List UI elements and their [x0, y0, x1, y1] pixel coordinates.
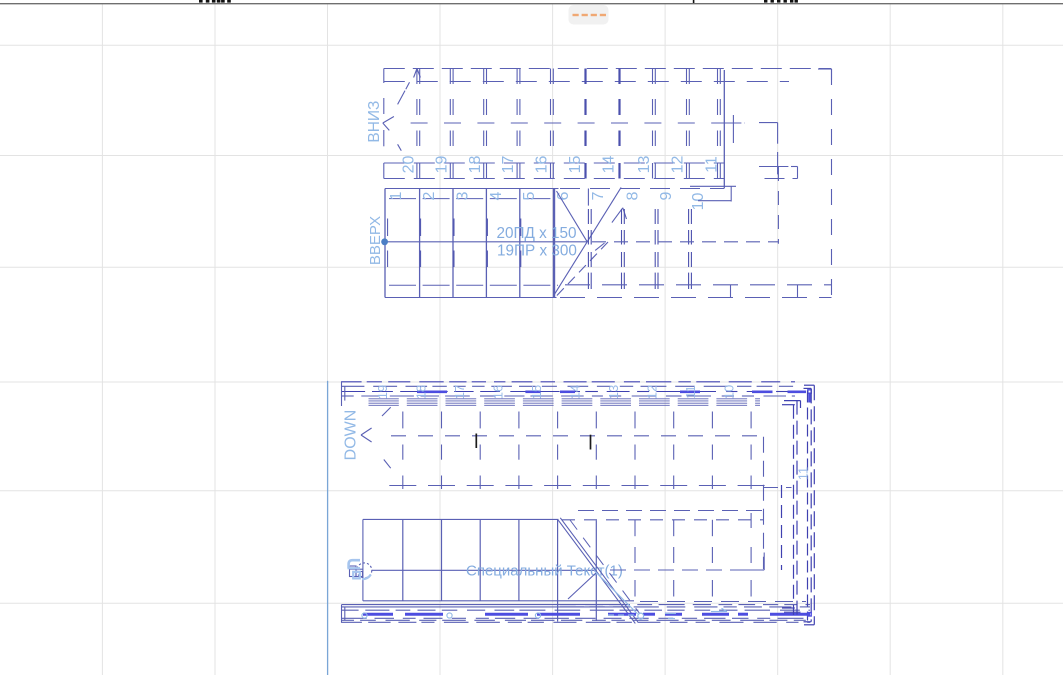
- svg-text:11: 11: [704, 156, 721, 173]
- svg-text:16: 16: [534, 156, 551, 174]
- svg-text:19: 19: [433, 156, 450, 174]
- svg-text:15: 15: [529, 385, 544, 399]
- svg-text:14: 14: [600, 156, 617, 174]
- svg-text:5: 5: [521, 191, 538, 200]
- svg-text:15: 15: [567, 156, 584, 174]
- svg-text:9: 9: [658, 191, 675, 200]
- svg-text:18: 18: [414, 385, 429, 399]
- svg-text:19: 19: [375, 385, 390, 399]
- svg-text:10: 10: [722, 385, 737, 399]
- svg-text:14: 14: [568, 385, 583, 399]
- svg-text:7: 7: [590, 191, 607, 200]
- svg-text:13: 13: [606, 385, 621, 399]
- svg-text:13: 13: [636, 156, 653, 174]
- svg-text:3: 3: [454, 191, 471, 200]
- svg-text:8: 8: [624, 191, 641, 200]
- svg-text:11: 11: [683, 385, 698, 399]
- svg-text:20ПД x 150: 20ПД x 150: [496, 225, 576, 242]
- svg-text:ВНИЗ: ВНИЗ: [366, 101, 383, 143]
- svg-text:16: 16: [491, 385, 506, 399]
- svg-text:17: 17: [452, 385, 467, 399]
- svg-text:1: 1: [388, 191, 405, 200]
- svg-text:DOWN: DOWN: [343, 410, 360, 461]
- svg-text:11: 11: [796, 467, 811, 481]
- svg-text:19ПР x 300: 19ПР x 300: [497, 243, 577, 260]
- svg-text:17: 17: [500, 156, 517, 174]
- svg-text:12: 12: [645, 385, 660, 399]
- svg-text:ВВЕРХ: ВВЕРХ: [367, 216, 384, 265]
- svg-text:18: 18: [467, 156, 484, 174]
- svg-text:12: 12: [669, 156, 686, 174]
- svg-text:4: 4: [488, 191, 505, 200]
- svg-text:2: 2: [421, 191, 438, 200]
- svg-text:20: 20: [401, 156, 418, 174]
- svg-text:10: 10: [690, 193, 707, 211]
